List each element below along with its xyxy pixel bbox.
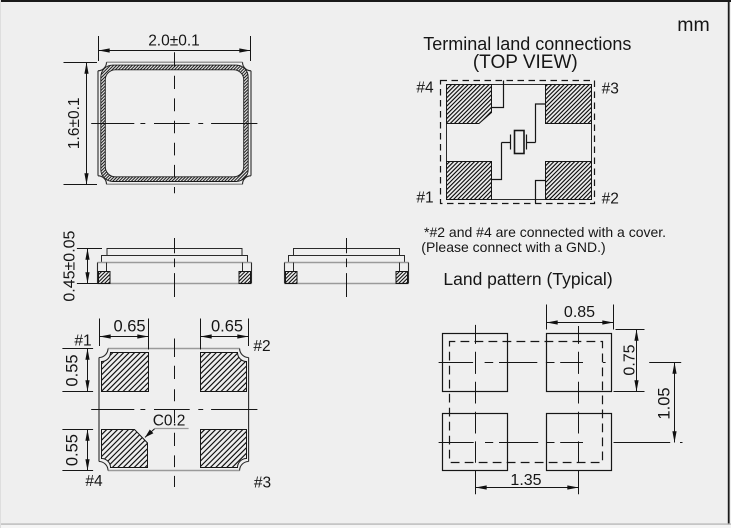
- svg-text:0.75: 0.75: [622, 344, 639, 375]
- svg-text:0.55: 0.55: [64, 354, 82, 386]
- svg-text:0.65: 0.65: [211, 317, 243, 335]
- svg-text:1.35: 1.35: [510, 472, 541, 489]
- svg-text:(TOP VIEW): (TOP VIEW): [473, 52, 578, 73]
- svg-text:mm: mm: [677, 14, 710, 36]
- svg-text:Terminal land connections: Terminal land connections: [423, 34, 631, 54]
- svg-text:#2: #2: [602, 191, 619, 208]
- svg-text:1.6±0.1: 1.6±0.1: [66, 97, 83, 149]
- svg-text:#4: #4: [85, 473, 103, 490]
- svg-text:#3: #3: [254, 475, 271, 492]
- svg-text:(Please connect with a GND.): (Please connect with a GND.): [421, 239, 605, 255]
- svg-text:0.45±0.05: 0.45±0.05: [62, 230, 79, 301]
- svg-text:#2: #2: [253, 338, 270, 355]
- svg-text:0.85: 0.85: [564, 304, 595, 321]
- svg-text:2.0±0.1: 2.0±0.1: [148, 33, 200, 50]
- svg-text:#4: #4: [416, 79, 434, 96]
- svg-text:0.65: 0.65: [113, 317, 145, 335]
- svg-text:C0.2: C0.2: [153, 413, 186, 430]
- svg-text:Land pattern (Typical): Land pattern (Typical): [443, 269, 612, 289]
- svg-text:*#2 and #4 are connected with: *#2 and #4 are connected with a cover.: [424, 224, 666, 240]
- svg-text:0.55: 0.55: [64, 434, 82, 466]
- svg-text:#1: #1: [74, 332, 91, 349]
- svg-text:#1: #1: [416, 190, 433, 207]
- svg-text:#3: #3: [602, 80, 619, 97]
- svg-text:1.05: 1.05: [656, 387, 674, 419]
